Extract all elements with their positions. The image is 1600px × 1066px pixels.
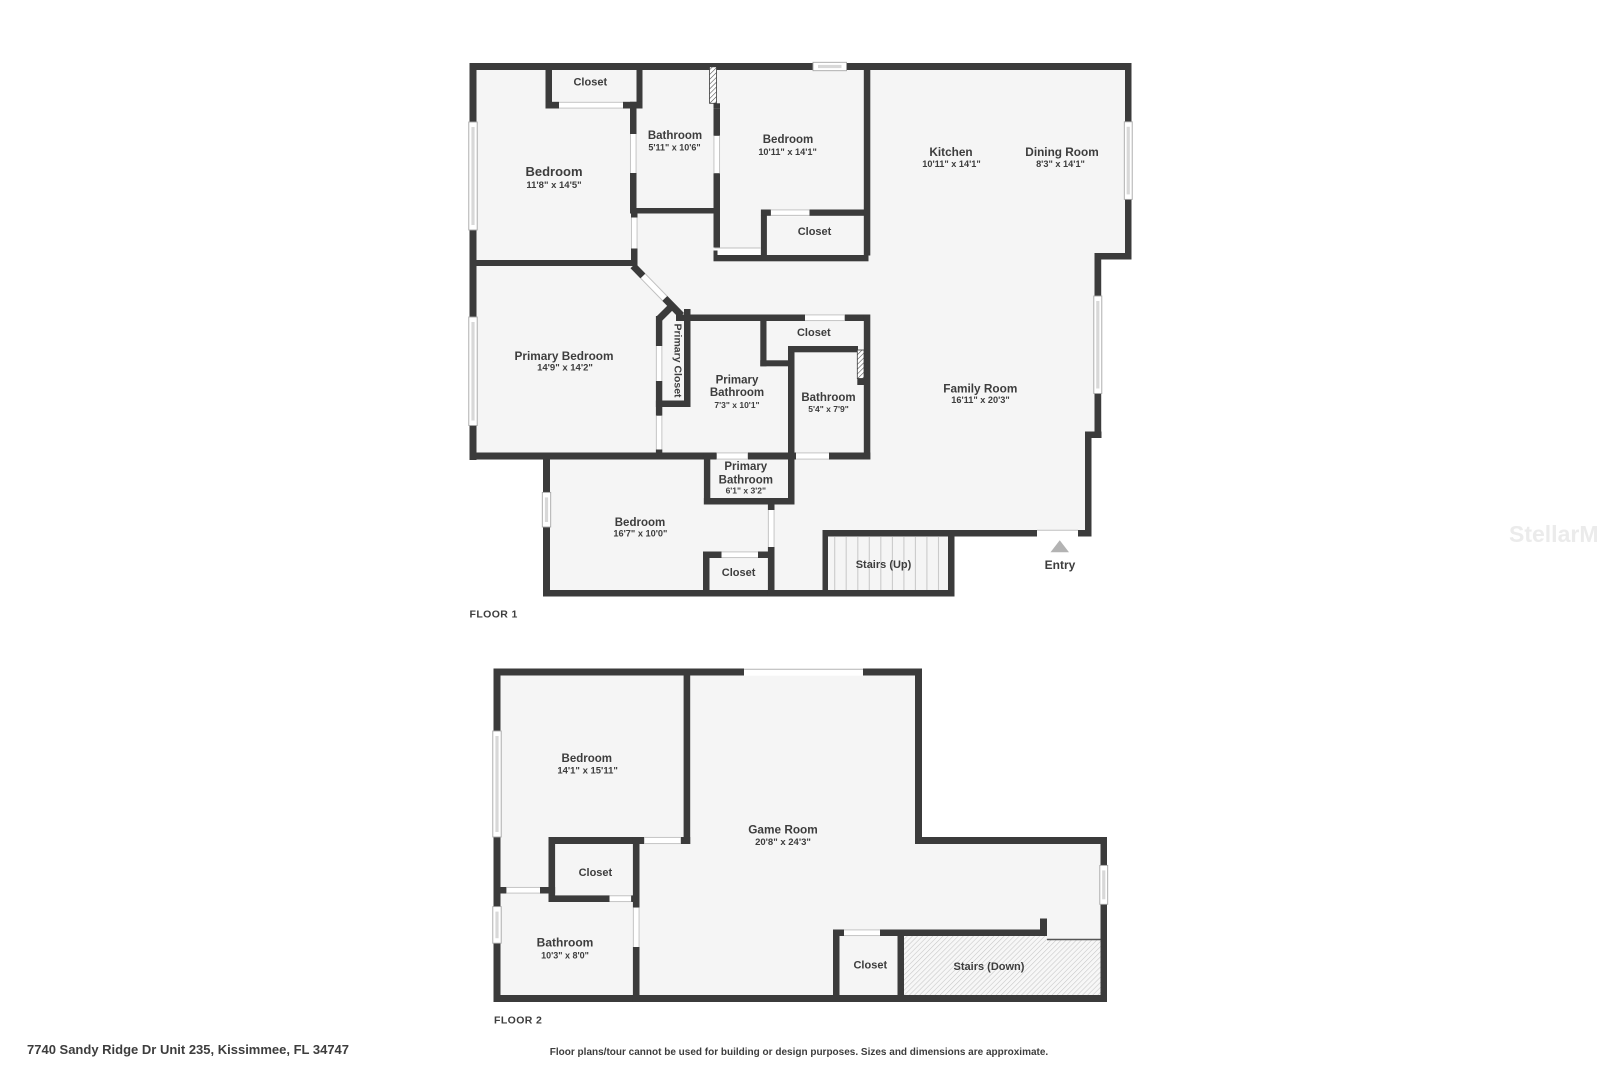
svg-text:Stairs (Down): Stairs (Down) (954, 961, 1025, 973)
svg-text:6'1" x 3'2": 6'1" x 3'2" (726, 486, 766, 496)
svg-text:14'9" x 14'2": 14'9" x 14'2" (537, 363, 593, 374)
svg-text:Kitchen: Kitchen (929, 145, 972, 159)
svg-text:Bathroom: Bathroom (710, 387, 764, 399)
svg-text:Bedroom: Bedroom (562, 753, 612, 765)
svg-text:10'11" x 14'1": 10'11" x 14'1" (922, 159, 981, 169)
svg-text:Primary Closet: Primary Closet (672, 323, 684, 398)
svg-text:Bedroom: Bedroom (525, 164, 582, 179)
svg-text:20'8" x 24'3": 20'8" x 24'3" (755, 837, 811, 848)
svg-text:Bedroom: Bedroom (615, 517, 665, 529)
svg-text:Closet: Closet (722, 567, 756, 579)
svg-text:Closet: Closet (798, 226, 832, 238)
svg-text:FLOOR 1: FLOOR 1 (470, 609, 518, 621)
svg-text:Stairs (Up): Stairs (Up) (856, 559, 912, 571)
svg-text:16'11" x 20'3": 16'11" x 20'3" (951, 395, 1010, 405)
svg-text:16'7" x 10'0": 16'7" x 10'0" (613, 529, 667, 539)
svg-text:FLOOR 2: FLOOR 2 (494, 1015, 542, 1027)
svg-text:Primary Bedroom: Primary Bedroom (515, 349, 614, 363)
svg-text:Bathroom: Bathroom (648, 130, 702, 142)
svg-text:5'4" x 7'9": 5'4" x 7'9" (808, 404, 848, 414)
svg-text:10'3" x 8'0": 10'3" x 8'0" (541, 951, 589, 961)
svg-text:8'3" x 14'1": 8'3" x 14'1" (1036, 159, 1085, 169)
svg-text:Bathroom: Bathroom (537, 936, 594, 950)
svg-text:Bedroom: Bedroom (763, 134, 813, 146)
svg-text:Dining Room: Dining Room (1025, 145, 1098, 159)
svg-text:14'1" x 15'11": 14'1" x 15'11" (557, 766, 618, 777)
svg-text:5'11" x 10'6": 5'11" x 10'6" (648, 143, 700, 153)
svg-text:7740 Sandy Ridge Dr Unit 235,: 7740 Sandy Ridge Dr Unit 235, Kissimmee,… (27, 1042, 349, 1057)
svg-text:Entry: Entry (1045, 558, 1076, 572)
svg-text:7'3" x 10'1": 7'3" x 10'1" (714, 400, 759, 410)
svg-text:11'8" x 14'5": 11'8" x 14'5" (526, 180, 581, 191)
svg-text:Closet: Closet (579, 867, 613, 879)
svg-text:Floor plans/tour cannot be use: Floor plans/tour cannot be used for buil… (550, 1047, 1049, 1058)
svg-text:10'11" x 14'1": 10'11" x 14'1" (758, 147, 817, 157)
svg-text:Closet: Closet (853, 960, 887, 972)
svg-text:Primary: Primary (724, 461, 767, 473)
svg-text:Bathroom: Bathroom (801, 392, 855, 404)
svg-text:Closet: Closet (573, 77, 607, 89)
svg-text:Primary: Primary (716, 375, 759, 387)
svg-text:Game Room: Game Room (748, 823, 818, 837)
svg-text:Closet: Closet (797, 327, 831, 339)
svg-text:StellarMLS: StellarMLS (1509, 521, 1600, 547)
svg-text:Family Room: Family Room (943, 382, 1017, 396)
